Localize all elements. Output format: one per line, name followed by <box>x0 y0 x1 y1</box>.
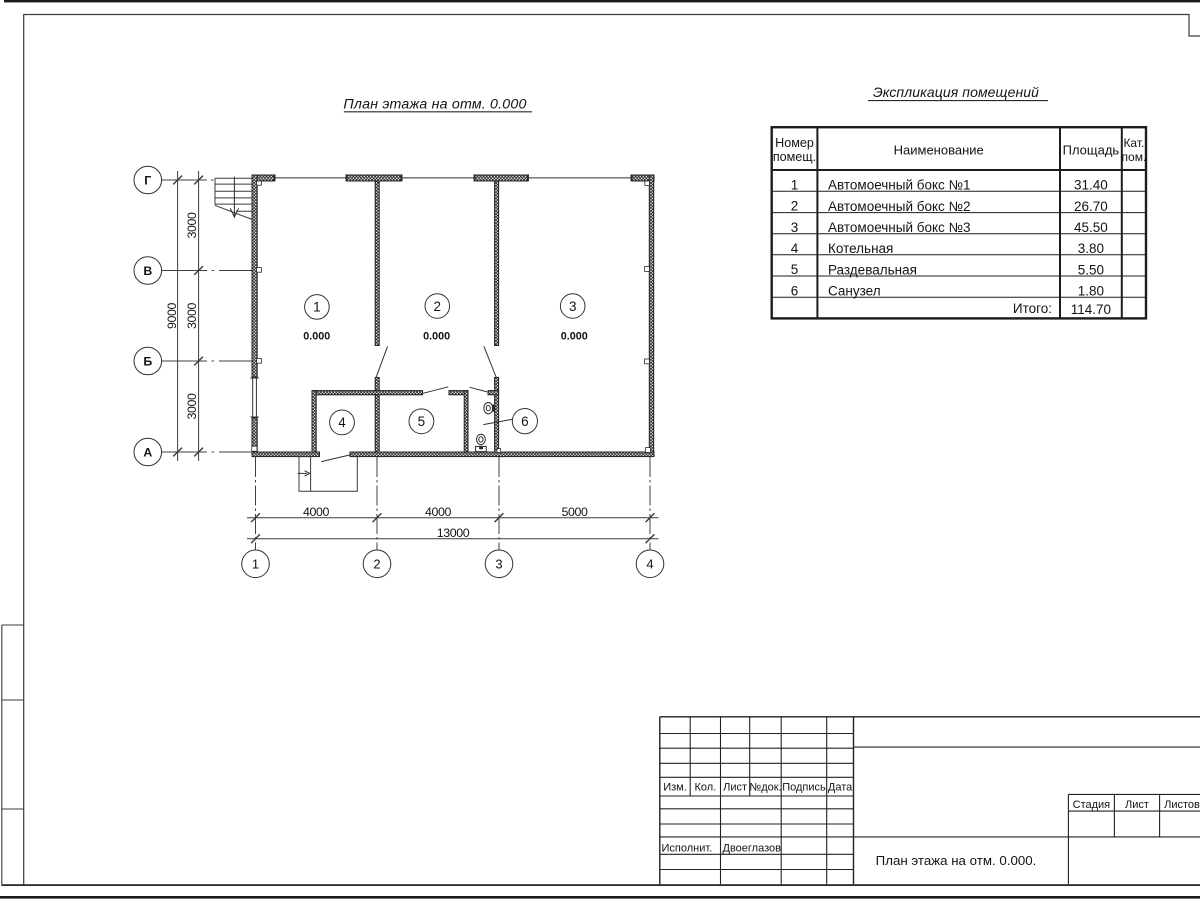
svg-text:План этажа на отм. 0.000: План этажа на отм. 0.000 <box>343 97 526 113</box>
svg-text:Автомоечный бокс №1: Автомоечный бокс №1 <box>828 178 971 193</box>
svg-text:1: 1 <box>791 177 799 192</box>
svg-text:Площадь: Площадь <box>1063 143 1120 158</box>
svg-text:26.70: 26.70 <box>1074 199 1108 214</box>
svg-text:В: В <box>143 264 152 278</box>
svg-text:0.000: 0.000 <box>561 330 588 342</box>
svg-text:Исполнит.: Исполнит. <box>662 843 713 855</box>
svg-text:№док.: №док. <box>749 782 781 794</box>
svg-text:3: 3 <box>791 220 799 235</box>
svg-text:0.000: 0.000 <box>423 330 450 342</box>
svg-text:Г: Г <box>144 174 151 188</box>
svg-text:помещ.: помещ. <box>773 150 816 164</box>
svg-text:4000: 4000 <box>303 505 329 519</box>
svg-text:Итого:: Итого: <box>1013 301 1052 316</box>
svg-text:9000: 9000 <box>165 303 179 329</box>
svg-text:2: 2 <box>373 557 380 572</box>
svg-text:Автомоечный бокс №3: Автомоечный бокс №3 <box>828 220 971 235</box>
svg-text:1.80: 1.80 <box>1078 284 1104 299</box>
svg-text:4: 4 <box>791 241 799 256</box>
svg-text:2: 2 <box>434 299 442 314</box>
svg-text:4000: 4000 <box>425 505 451 519</box>
svg-text:3000: 3000 <box>185 393 199 419</box>
svg-text:4: 4 <box>646 557 653 572</box>
svg-text:Дата: Дата <box>828 782 853 794</box>
svg-text:3000: 3000 <box>185 303 199 329</box>
svg-text:Лист: Лист <box>1125 799 1149 811</box>
svg-text:6: 6 <box>521 414 529 429</box>
svg-text:5: 5 <box>418 414 426 429</box>
svg-text:6: 6 <box>791 283 799 298</box>
svg-text:Раздевальная: Раздевальная <box>828 262 917 277</box>
svg-text:Листов: Листов <box>1164 799 1200 811</box>
svg-text:0.000: 0.000 <box>303 330 330 342</box>
svg-text:Кол.: Кол. <box>695 782 717 794</box>
svg-text:Номер: Номер <box>775 136 814 150</box>
svg-text:Экспликация помещений: Экспликация помещений <box>873 84 1039 100</box>
svg-text:3000: 3000 <box>185 212 199 238</box>
svg-text:Б: Б <box>143 355 152 369</box>
svg-text:31.40: 31.40 <box>1074 178 1108 193</box>
svg-text:2: 2 <box>791 199 799 214</box>
svg-text:3.80: 3.80 <box>1078 241 1104 256</box>
svg-text:5.50: 5.50 <box>1078 262 1104 277</box>
svg-text:Автомоечный бокс №2: Автомоечный бокс №2 <box>828 199 971 214</box>
svg-text:Двоеглазов: Двоеглазов <box>723 843 782 855</box>
svg-text:13000: 13000 <box>437 526 470 540</box>
svg-text:5000: 5000 <box>562 505 588 519</box>
svg-text:План этажа на отм. 0.000.: План этажа на отм. 0.000. <box>876 853 1037 868</box>
svg-text:Кат.: Кат. <box>1123 136 1144 150</box>
svg-text:Стадия: Стадия <box>1073 799 1111 811</box>
svg-text:Котельная: Котельная <box>828 241 893 256</box>
svg-text:Санузел: Санузел <box>828 284 881 299</box>
svg-text:114.70: 114.70 <box>1071 302 1111 317</box>
svg-text:3: 3 <box>569 299 577 314</box>
svg-text:1: 1 <box>313 300 321 315</box>
svg-text:5: 5 <box>791 262 799 277</box>
svg-text:пом.: пом. <box>1122 150 1147 164</box>
svg-text:45.50: 45.50 <box>1074 220 1108 235</box>
svg-text:Лист: Лист <box>723 782 747 794</box>
svg-text:3: 3 <box>495 557 502 572</box>
svg-text:А: А <box>143 446 152 460</box>
svg-text:Наименование: Наименование <box>894 143 984 158</box>
svg-text:1: 1 <box>252 557 259 572</box>
svg-text:Изм.: Изм. <box>663 782 687 794</box>
svg-text:4: 4 <box>338 415 346 430</box>
svg-text:Подпись: Подпись <box>782 782 826 794</box>
